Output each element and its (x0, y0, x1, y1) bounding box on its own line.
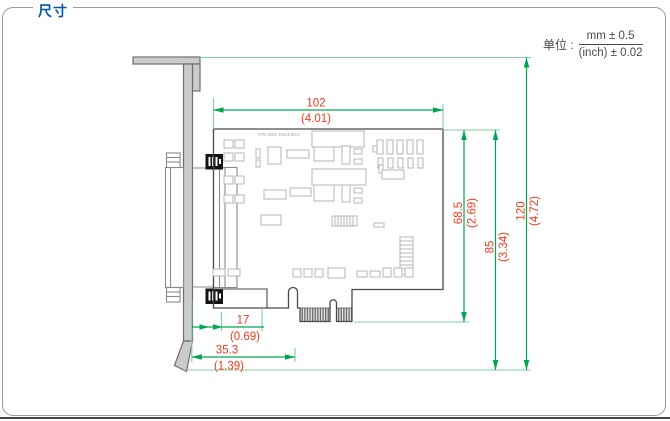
page-title: 尺寸 (33, 1, 73, 21)
unit-fraction: mm ± 0.5 (inch) ± 0.02 (579, 29, 643, 60)
dim-mid-height-in: (3.34) (498, 232, 510, 262)
dim-edge-offset-mm: 35.3 (216, 345, 238, 357)
dsub-post-bottom (167, 288, 181, 303)
dim-pcb-height-mm: 68.5 (453, 202, 465, 224)
dim-mid-height-mm: 85 (485, 241, 497, 254)
bracket-foot (175, 341, 193, 372)
pcb-components (213, 131, 423, 278)
dimension-diagram: P/N D00-03LE3G1 102 (0, 0, 670, 421)
dsub-post-top (167, 153, 181, 168)
dsub-faceplate (166, 168, 184, 288)
bracket-body (184, 64, 193, 341)
board-part-number: P/N D00-03LE3G1 (258, 132, 300, 137)
dim-pcb-height-in: (2.69) (467, 198, 479, 228)
dim-width-mm: 102 (306, 98, 325, 110)
dim-conn-offset-mm: 17 (237, 315, 250, 327)
bracket-top-flange (133, 57, 200, 64)
dsub-connector (166, 153, 238, 302)
dim-width-in: (4.01) (301, 113, 331, 125)
bracket-step (193, 64, 201, 91)
unit-label: 单位 : (543, 36, 574, 53)
unit-note: 单位 : mm ± 0.5 (inch) ± 0.02 (543, 29, 643, 60)
unit-metric: mm ± 0.5 (579, 29, 643, 45)
dim-edge-offset-in: (1.39) (214, 361, 244, 373)
dim-total-height-in: (4.72) (529, 196, 541, 226)
dimension-labels: 102 (4.01) 17 (0.69) 35.3 (1.39) 68.5 (2… (214, 98, 541, 373)
unit-imperial: (inch) ± 0.02 (579, 45, 643, 60)
dim-conn-offset-in: (0.69) (230, 331, 260, 343)
pcie-gold-fingers (300, 308, 352, 322)
dim-total-height-mm: 120 (516, 201, 528, 220)
